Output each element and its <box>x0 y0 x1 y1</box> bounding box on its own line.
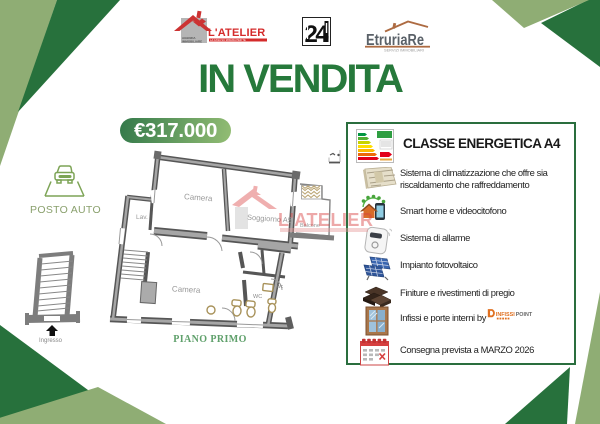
svg-text:Camera: Camera <box>184 192 214 203</box>
svg-text:Camera: Camera <box>172 284 201 295</box>
svg-text:Lav.: Lav. <box>136 214 148 221</box>
svg-text:WC: WC <box>253 294 262 300</box>
svg-text:POINT: POINT <box>516 312 533 318</box>
svg-text:Ingresso: Ingresso <box>39 338 63 344</box>
svg-text:INFISSI: INFISSI <box>496 312 515 318</box>
svg-text:L'ATELIER: L'ATELIER <box>278 210 373 230</box>
svg-text:wc: wc <box>277 284 284 290</box>
